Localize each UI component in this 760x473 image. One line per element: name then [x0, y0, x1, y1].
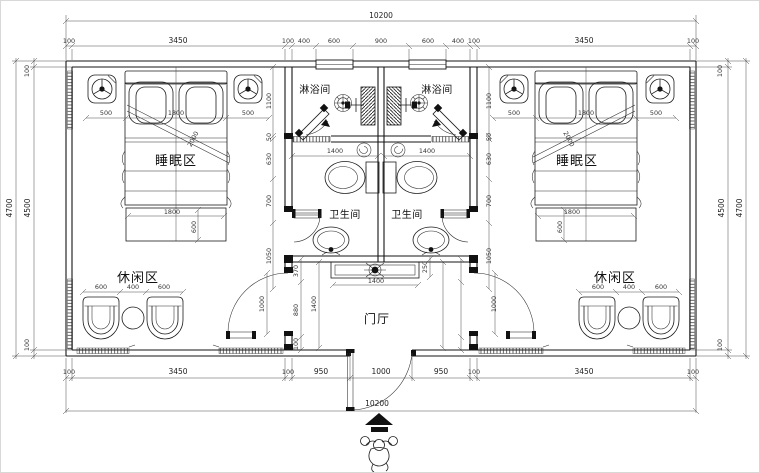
- dim-side-chain: 50: [485, 133, 493, 141]
- dim-side-right-outer: 4700: [735, 198, 744, 217]
- dim-chairs: 600: [592, 283, 604, 291]
- dim-chairs: 600: [158, 283, 170, 291]
- dim-top: 100: [63, 37, 75, 45]
- dim-bed: 500: [650, 109, 662, 117]
- dim-side-chain: 1100: [485, 93, 493, 109]
- dim-bench: 600: [190, 221, 198, 233]
- dim-bath-width: 1400: [327, 147, 343, 155]
- dim-bed: 500: [242, 109, 254, 117]
- dim-top: 400: [298, 37, 310, 45]
- dim-top: 400: [452, 37, 464, 45]
- dim-bottom: 100: [687, 368, 699, 376]
- dim-bottom: 950: [314, 367, 329, 376]
- dim-top: 100: [282, 37, 294, 45]
- dim-side-chain: 1100: [265, 93, 273, 109]
- dim-side-chain: 630: [485, 153, 493, 165]
- dim-hall-height: 1400: [310, 296, 318, 312]
- room-label-hall: 门厅: [364, 311, 390, 326]
- dim-chairs: 600: [655, 283, 667, 291]
- dim-bottom: 100: [468, 368, 480, 376]
- dim-chairs: 400: [623, 283, 635, 291]
- dim-hall-chain: 100: [292, 338, 300, 350]
- dim-overall-top: 10200: [369, 11, 393, 20]
- dim-side-chain: 1050: [265, 248, 273, 264]
- dim-overall-bottom: 10200: [365, 399, 389, 408]
- dim-top: 900: [375, 37, 387, 45]
- dim-bed: 500: [508, 109, 520, 117]
- dim-bottom: 950: [434, 367, 449, 376]
- dim-console-width: 1400: [368, 277, 384, 285]
- dim-top: 600: [328, 37, 340, 45]
- dim-wall: 100: [716, 65, 724, 77]
- dim-side-left-outer: 4700: [5, 198, 14, 217]
- dim-wall: 100: [23, 65, 31, 77]
- dim-bath-width: 1400: [419, 147, 435, 155]
- dim-side-right-inner: 4500: [717, 198, 726, 217]
- dim-door-width: 1000: [490, 296, 498, 312]
- dim-bench: 1800: [564, 208, 580, 216]
- dim-bed: 1800: [578, 109, 594, 117]
- dim-bottom: 3450: [168, 367, 187, 376]
- dim-hall-chain: 370: [292, 265, 300, 277]
- dim-bottom: 1000: [371, 367, 390, 376]
- dim-chairs: 600: [95, 283, 107, 291]
- dim-side-chain: 700: [265, 195, 273, 207]
- dim-bottom: 100: [63, 368, 75, 376]
- plan-left-half: [12, 15, 381, 414]
- room-label-sleep-right: 睡眠区: [556, 154, 598, 169]
- dim-wall: 100: [716, 339, 724, 351]
- dim-side-chain: 1050: [485, 248, 493, 264]
- room-label-sleep-left: 睡眠区: [155, 154, 197, 169]
- dim-bed-diagonal: 2000: [186, 130, 201, 148]
- dim-top: 600: [422, 37, 434, 45]
- dim-top: 100: [468, 37, 480, 45]
- dim-top: 3450: [168, 36, 187, 45]
- dim-bench: 600: [556, 221, 564, 233]
- dim-top: 3450: [574, 36, 593, 45]
- dim-bottom: 3450: [574, 367, 593, 376]
- dim-bed-diagonal: 2000: [561, 130, 576, 148]
- room-labels: 淋浴间 淋浴间 卫生间 卫生间 睡眠区 睡眠区 休闲区 休闲区 门厅: [117, 83, 636, 326]
- floor-plan-canvas: 淋浴间 淋浴间 卫生间 卫生间 睡眠区 睡眠区 休闲区 休闲区 门厅 10200…: [0, 0, 760, 473]
- dim-side-chain: 700: [485, 195, 493, 207]
- room-label-shower-right: 淋浴间: [421, 83, 453, 96]
- dim-bench: 1800: [164, 208, 180, 216]
- dim-chairs: 400: [127, 283, 139, 291]
- dim-wall: 100: [23, 339, 31, 351]
- dim-top: 100: [687, 37, 699, 45]
- room-label-shower-left: 淋浴间: [299, 83, 331, 96]
- floor-plan-drawing: 淋浴间 淋浴间 卫生间 卫生间 睡眠区 睡眠区 休闲区 休闲区 门厅 10200…: [1, 1, 760, 473]
- person-top-view-icon: [361, 437, 398, 473]
- room-label-bath-right: 卫生间: [391, 208, 423, 221]
- dim-bed: 1800: [168, 109, 184, 117]
- dim-console-depth: 250: [421, 261, 429, 273]
- dim-side-chain: 50: [265, 133, 273, 141]
- entrance-arrow-icon: [365, 413, 393, 432]
- dim-door-width: 1000: [258, 296, 266, 312]
- dim-hall-chain: 880: [292, 304, 300, 316]
- dim-side-left-inner: 4500: [23, 198, 32, 217]
- dim-side-chain: 630: [265, 153, 273, 165]
- dim-bottom: 100: [282, 368, 294, 376]
- dim-bed: 500: [100, 109, 112, 117]
- room-label-bath-left: 卫生间: [329, 208, 361, 221]
